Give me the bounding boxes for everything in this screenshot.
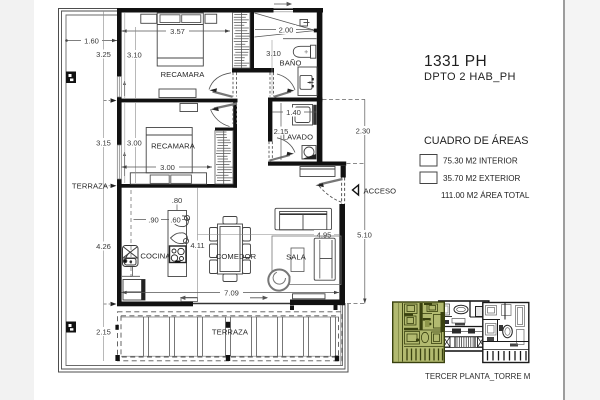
svg-text:35.70 M2 EXTERIOR: 35.70 M2 EXTERIOR [443, 174, 521, 183]
svg-text:3.25: 3.25 [96, 50, 111, 59]
svg-text:RECAMARA: RECAMARA [151, 142, 196, 151]
svg-text:1.40: 1.40 [286, 108, 301, 117]
svg-text:3.15: 3.15 [96, 139, 111, 148]
svg-text:3.00: 3.00 [160, 163, 175, 172]
svg-text:3.10: 3.10 [266, 49, 281, 58]
svg-text:2.30: 2.30 [356, 127, 371, 136]
svg-text:4.11: 4.11 [190, 241, 204, 250]
svg-text:1331 PH: 1331 PH [424, 53, 487, 70]
svg-text:RECAMARA: RECAMARA [161, 70, 206, 79]
svg-text:75.30 M2 INTERIOR: 75.30 M2 INTERIOR [443, 157, 518, 166]
svg-text:TERCER PLANTA_TORRE M: TERCER PLANTA_TORRE M [425, 372, 530, 381]
svg-text:DPTO 2 HAB_PH: DPTO 2 HAB_PH [424, 71, 516, 83]
svg-text:4.26: 4.26 [96, 242, 111, 251]
svg-text:COMEDOR: COMEDOR [216, 252, 257, 261]
svg-text:.80: .80 [172, 196, 183, 205]
svg-text:111.00 M2 ÁREA TOTAL: 111.00 M2 ÁREA TOTAL [441, 191, 530, 200]
svg-text:3.00: 3.00 [127, 139, 142, 148]
svg-text:CUADRO DE ÁREAS: CUADRO DE ÁREAS [424, 134, 528, 147]
svg-text:COCINA: COCINA [140, 252, 171, 261]
svg-text:ACCESO: ACCESO [364, 187, 397, 196]
svg-text:5.10: 5.10 [357, 231, 372, 240]
svg-text:SALA: SALA [286, 253, 307, 262]
svg-text:3.57: 3.57 [170, 27, 185, 36]
svg-text:BAÑO: BAÑO [280, 59, 302, 68]
svg-text:.90: .90 [148, 216, 159, 225]
svg-text:1.60: 1.60 [84, 37, 99, 46]
svg-text:LAVADO: LAVADO [283, 133, 313, 142]
svg-text:TERRAZA: TERRAZA [212, 328, 249, 337]
svg-text:.60: .60 [170, 216, 181, 225]
svg-text:3.10: 3.10 [127, 51, 142, 60]
svg-text:2.15: 2.15 [96, 328, 111, 337]
svg-text:2.00: 2.00 [279, 26, 294, 35]
svg-text:7.09: 7.09 [224, 289, 239, 298]
svg-text:TERRAZA: TERRAZA [72, 182, 109, 191]
